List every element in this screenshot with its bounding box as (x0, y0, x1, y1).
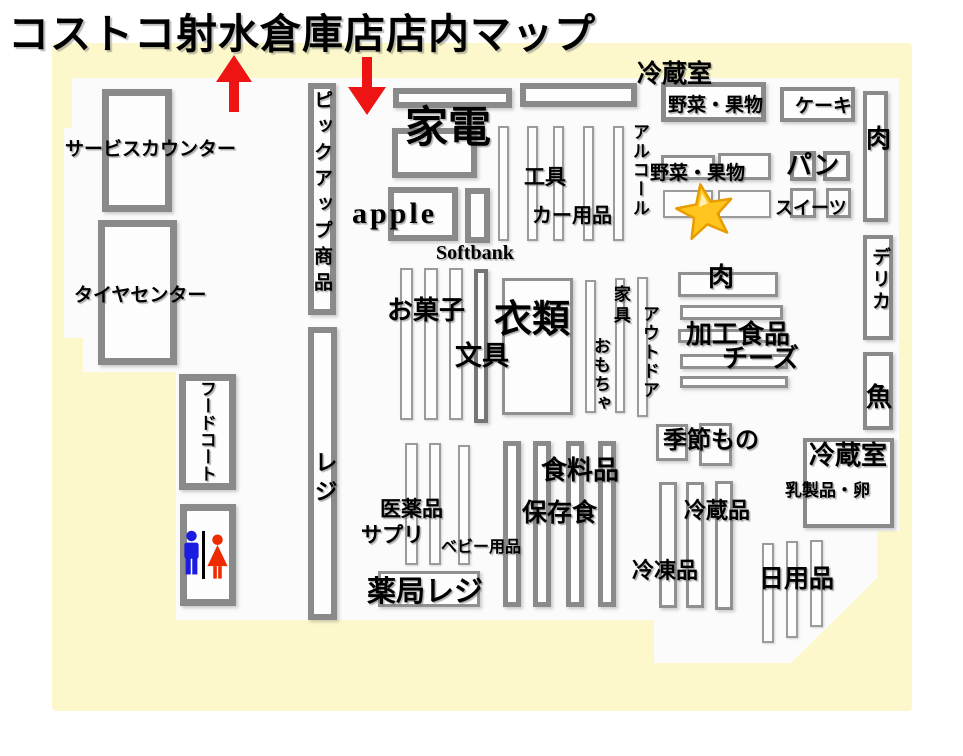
fridge-room-back-label: 冷蔵室 (809, 442, 887, 469)
star-icon (671, 177, 738, 244)
down-arrow-icon (348, 57, 386, 115)
stationery-label: 文具 (455, 342, 509, 370)
sweets-label: スイーツ (775, 199, 847, 218)
tool-aisle-shelf (498, 126, 509, 241)
outdoor-label: アウトドア (640, 305, 658, 400)
cheese-bar (680, 376, 788, 388)
pickup-items-label: ピックアップ商品 (311, 90, 331, 298)
chilled-aisle-shelf (659, 482, 677, 608)
tire-center-label: タイヤセンター (74, 286, 206, 306)
dairy-eggs-label: 乳製品・卵 (785, 482, 870, 500)
produce-top-label: 野菜・果物 (668, 96, 763, 116)
page-title: コストコ射水倉庫店店内マップ (8, 0, 596, 60)
meat-wall-strip (863, 91, 888, 222)
bread-label: パン (786, 152, 839, 179)
women-restroom-icon (206, 534, 229, 581)
snack-aisle-shelf (400, 268, 413, 420)
car-supplies-label: カー用品 (532, 206, 612, 227)
appliances-label: 家電 (405, 106, 491, 151)
softbank-label: Softbank (436, 243, 514, 264)
medicine-label: 医薬品 (380, 498, 443, 520)
up-arrow-icon (216, 55, 252, 112)
fish-label: 魚 (866, 384, 892, 411)
processed-food-bar (680, 305, 783, 320)
restroom-divider-line (202, 531, 205, 579)
meat-center-label: 肉 (708, 264, 734, 291)
tools-label: 工具 (524, 166, 566, 188)
alcohol-label: アルコール (630, 123, 648, 218)
fridge-room-top-label: 冷蔵室 (637, 62, 712, 88)
baby-goods-label: ベビー用品 (441, 540, 521, 557)
groceries-label: 食料品 (541, 457, 619, 484)
cake-label: ケーキ (795, 97, 852, 117)
pharmacy-register-label: 薬局レジ (367, 577, 483, 607)
men-restroom-icon (182, 530, 201, 579)
clothing-label: 衣類 (494, 301, 570, 341)
cheese-label: チーズ (722, 345, 799, 372)
alcohol-aisle-shelf (613, 126, 624, 241)
store-map-page: コストコ射水倉庫店店内マップ サービスカウンター タイヤセンター フードコート … (0, 0, 963, 756)
snack-aisle-shelf (424, 268, 438, 420)
supplements-label: サプリ (361, 524, 424, 546)
chilled-label: 冷蔵品 (684, 499, 750, 522)
meat-wall-label: 肉 (866, 127, 891, 153)
daily-goods-label: 日用品 (759, 567, 834, 593)
preserved-food-label: 保存食 (522, 501, 597, 527)
grocery-aisle-shelf (503, 441, 521, 607)
toys-label: おもちゃ (591, 337, 609, 413)
furniture-label: 家具 (611, 285, 629, 327)
deli-label: デリカ (869, 247, 889, 313)
food-court-label: フードコート (197, 380, 215, 482)
service-counter-label: サービスカウンター (65, 140, 236, 160)
produce-mid-label: 野菜・果物 (650, 164, 745, 184)
seasonal-label: 季節もの (663, 429, 759, 454)
softbank-counter-box (465, 188, 490, 243)
appliance-shelf-top-b (520, 83, 637, 107)
frozen-label: 冷凍品 (632, 559, 698, 582)
register-label: レジ (311, 450, 335, 508)
snacks-label: お菓子 (387, 297, 465, 324)
apple-label: apple (352, 198, 437, 230)
